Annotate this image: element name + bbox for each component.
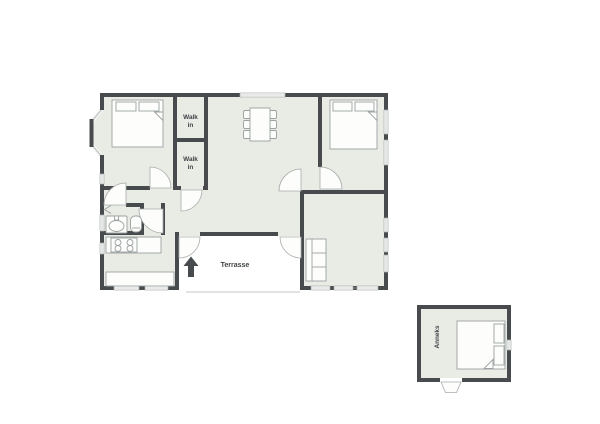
door-terrace-left bbox=[179, 237, 200, 258]
stove-icon bbox=[111, 238, 137, 252]
main-building: Walk in Walk in Terrasse bbox=[90, 93, 389, 292]
toilet-icon bbox=[131, 216, 142, 232]
north-arrow-icon bbox=[184, 257, 199, 278]
floor-plan-page: Walk in Walk in Terrasse Anneks bbox=[0, 0, 600, 424]
floor-plan-drawing: Walk in Walk in Terrasse Anneks bbox=[0, 0, 600, 424]
double-bed-icon bbox=[457, 321, 505, 369]
annex-building: Anneks bbox=[417, 305, 511, 393]
sofa-icon bbox=[306, 239, 326, 281]
annex-door-leaf bbox=[441, 382, 461, 393]
closet1-label-line1: Walk bbox=[183, 114, 198, 121]
annex-label: Anneks bbox=[434, 325, 441, 349]
double-bed-icon bbox=[112, 100, 163, 147]
sink-icon bbox=[106, 216, 127, 233]
closet2-label-line2: in bbox=[188, 164, 194, 171]
door-terrace-right bbox=[280, 237, 301, 258]
terrace-label: Terrasse bbox=[221, 262, 250, 269]
closet1-label-line2: in bbox=[188, 122, 194, 129]
double-bed-icon bbox=[330, 100, 377, 149]
dining-table-six-chairs-icon bbox=[244, 108, 277, 141]
closet2-label-line1: Walk bbox=[183, 156, 198, 163]
